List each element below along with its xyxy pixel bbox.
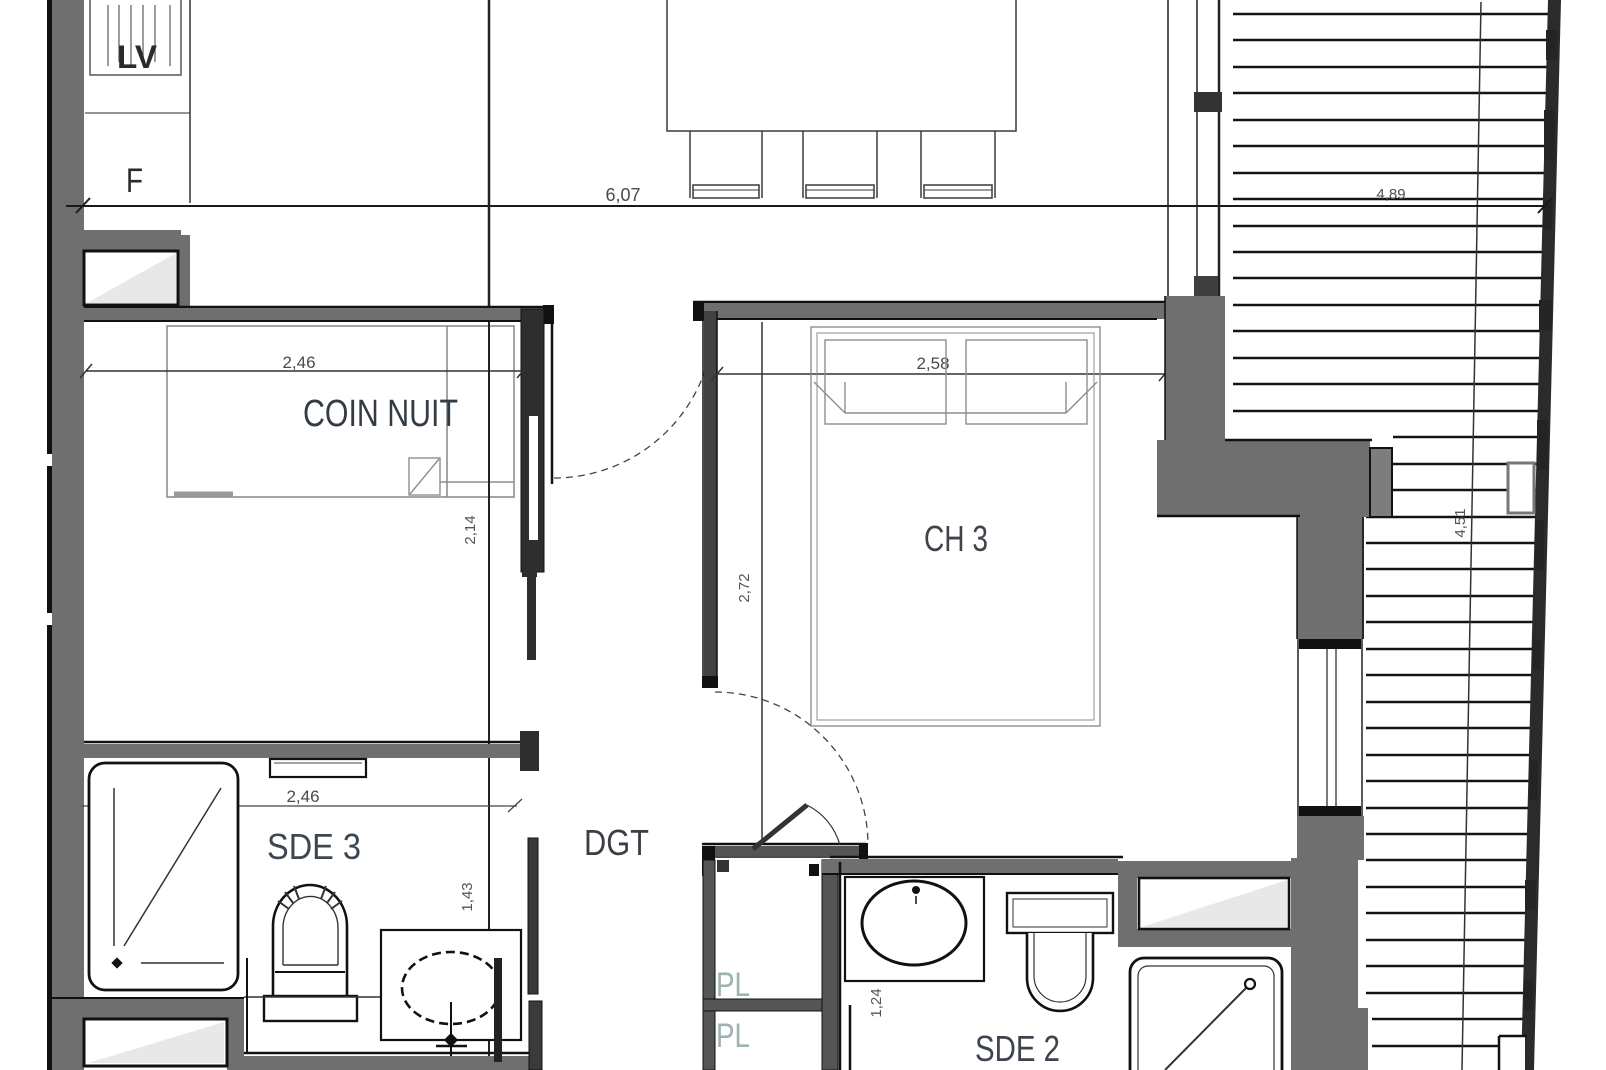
svg-text:2,14: 2,14 xyxy=(462,515,479,544)
svg-text:CH 3: CH 3 xyxy=(924,518,988,559)
svg-text:6,07: 6,07 xyxy=(605,185,640,205)
svg-text:PL: PL xyxy=(716,1017,750,1055)
svg-text:4,51: 4,51 xyxy=(1452,508,1469,537)
svg-text:2,72: 2,72 xyxy=(736,573,753,602)
svg-text:SDE 3: SDE 3 xyxy=(267,826,361,867)
svg-text:1,43: 1,43 xyxy=(459,882,476,911)
svg-text:4,89: 4,89 xyxy=(1376,186,1405,203)
svg-text:COIN NUIT: COIN NUIT xyxy=(303,393,458,435)
svg-text:LV: LV xyxy=(117,39,158,75)
svg-text:SDE 2: SDE 2 xyxy=(975,1028,1060,1069)
svg-text:2,46: 2,46 xyxy=(282,353,315,372)
svg-text:PL: PL xyxy=(716,966,750,1004)
svg-text:2,58: 2,58 xyxy=(916,354,949,373)
svg-text:1,24: 1,24 xyxy=(868,988,885,1017)
svg-text:2,46: 2,46 xyxy=(286,787,319,806)
svg-text:F: F xyxy=(126,162,143,200)
svg-text:DGT: DGT xyxy=(584,822,649,863)
